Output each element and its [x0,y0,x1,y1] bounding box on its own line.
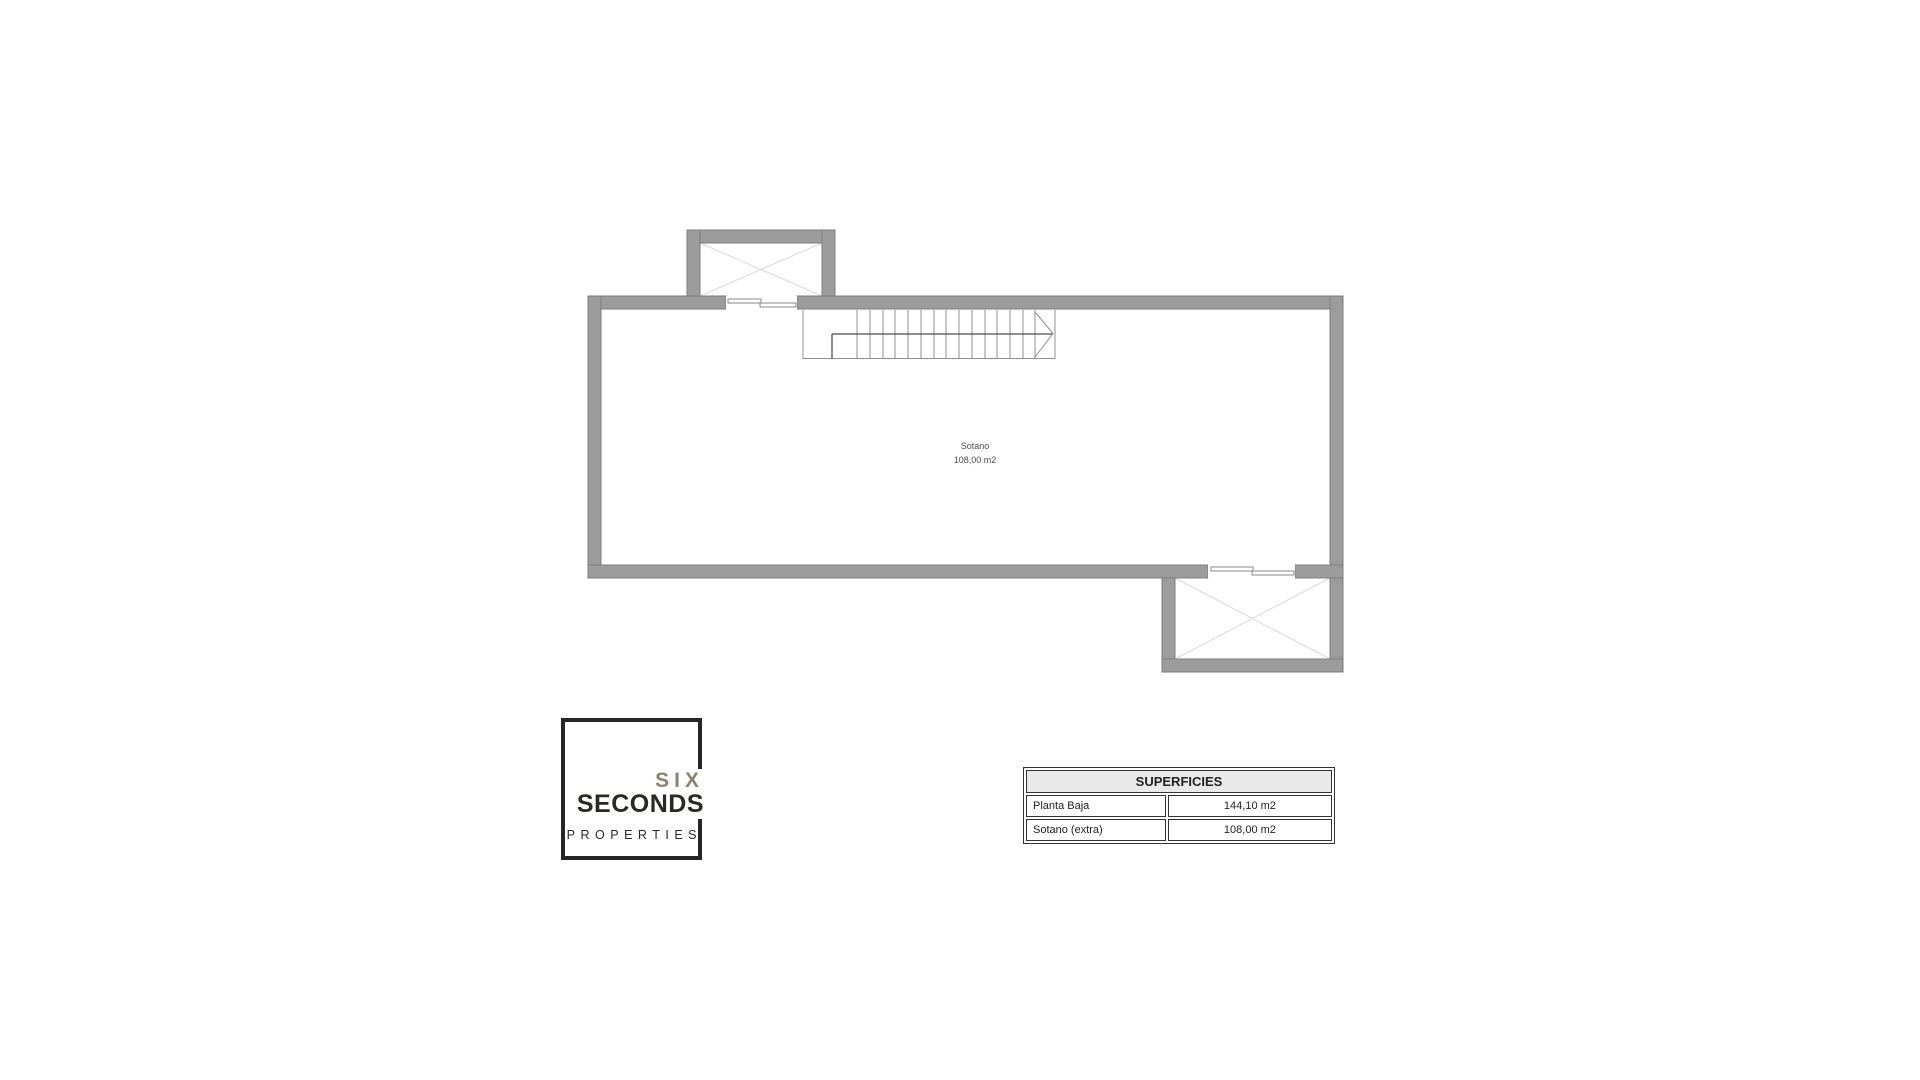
room-area: 108,00 m2 [954,454,997,468]
lightwell-bottom-cross [1175,578,1330,659]
row-value: 108,00 m2 [1168,819,1332,841]
window-bottom [1208,565,1295,578]
logo-word-seconds: SECONDS [567,792,705,819]
lightwell-top-cross [700,243,822,296]
superficies-table: SUPERFICIES Planta Baja 144,10 m2 Sotano… [1023,767,1335,844]
logo-word-six: SIX [567,769,705,792]
row-value: 144,10 m2 [1168,795,1332,817]
floor-plan [0,0,1920,1080]
staircase [803,310,1055,359]
lightwell-bottom-walls [1162,578,1343,672]
table-row: Planta Baja 144,10 m2 [1026,795,1332,817]
logo-word-properties: PROPERTIES [567,829,705,842]
table-title: SUPERFICIES [1026,770,1332,793]
page: Sotano 108,00 m2 SIX SECONDS PROPERTIES … [0,0,1920,1080]
table-header-row: SUPERFICIES [1026,770,1332,793]
room-label: Sotano 108,00 m2 [954,440,997,467]
table-row: Sotano (extra) 108,00 m2 [1026,819,1332,841]
six-seconds-logo: SIX SECONDS PROPERTIES [561,718,702,860]
row-label: Sotano (extra) [1026,819,1166,841]
lightwell-top-walls [687,230,835,296]
room-name: Sotano [954,440,997,454]
logo-text: SIX SECONDS PROPERTIES [567,769,705,842]
window-top [726,296,797,309]
row-label: Planta Baja [1026,795,1166,817]
stair-rail [832,334,1053,359]
exterior-walls [588,296,1343,672]
